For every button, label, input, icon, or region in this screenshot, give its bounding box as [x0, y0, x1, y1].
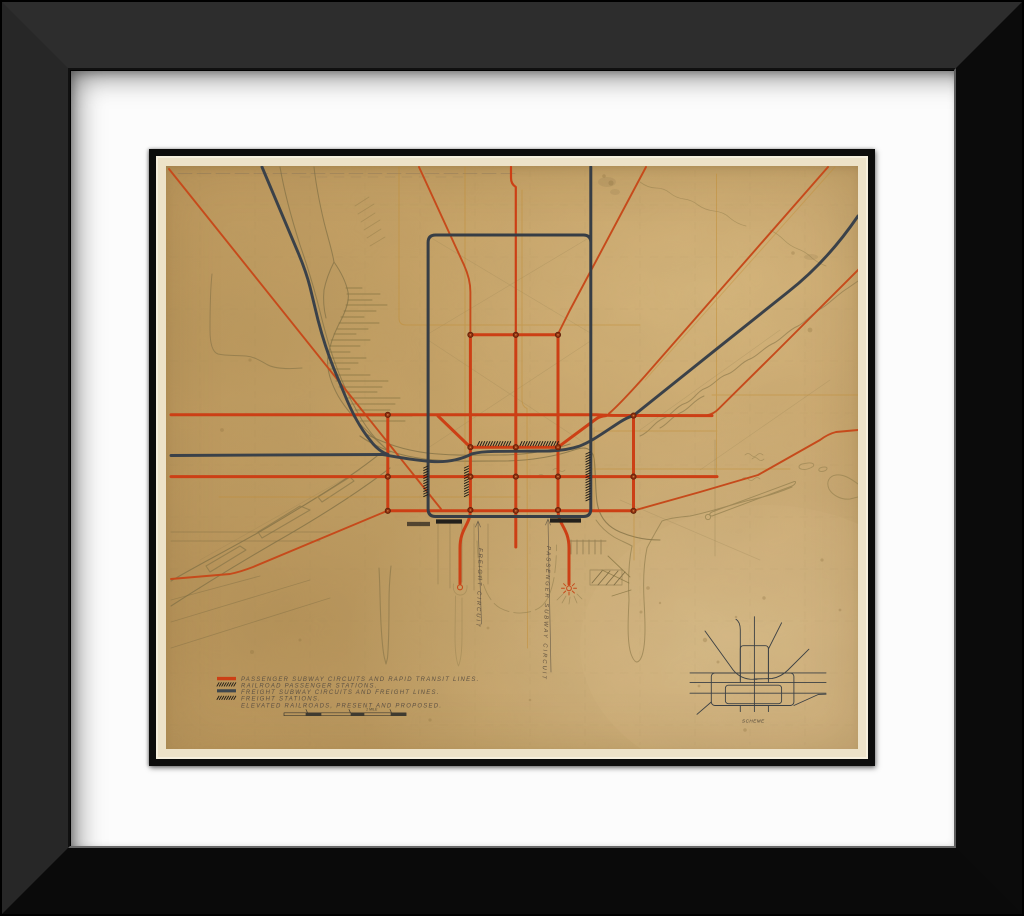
svg-text:SCHEME: SCHEME — [742, 719, 765, 724]
svg-text:ELEVATED RAILROADS, PRESENT AN: ELEVATED RAILROADS, PRESENT AND PROPOSED… — [241, 703, 442, 709]
svg-text:PASSENGER SUBWAY CIRCUIT: PASSENGER SUBWAY CIRCUIT — [540, 546, 551, 681]
svg-text:1 MILE: 1 MILE — [366, 708, 378, 712]
svg-text:FREIGHT CIRCUIT: FREIGHT CIRCUIT — [474, 548, 483, 629]
svg-text:FREIGHT STATIONS.: FREIGHT STATIONS. — [241, 697, 321, 703]
svg-text:RAILROAD PASSENGER STATIONS.: RAILROAD PASSENGER STATIONS. — [241, 684, 378, 690]
svg-text:PASSENGER SUBWAY CIRCUITS AND: PASSENGER SUBWAY CIRCUITS AND RAPID TRAN… — [241, 677, 480, 683]
svg-text:FREIGHT SUBWAY CIRCUITS AND FR: FREIGHT SUBWAY CIRCUITS AND FREIGHT LINE… — [241, 690, 440, 696]
